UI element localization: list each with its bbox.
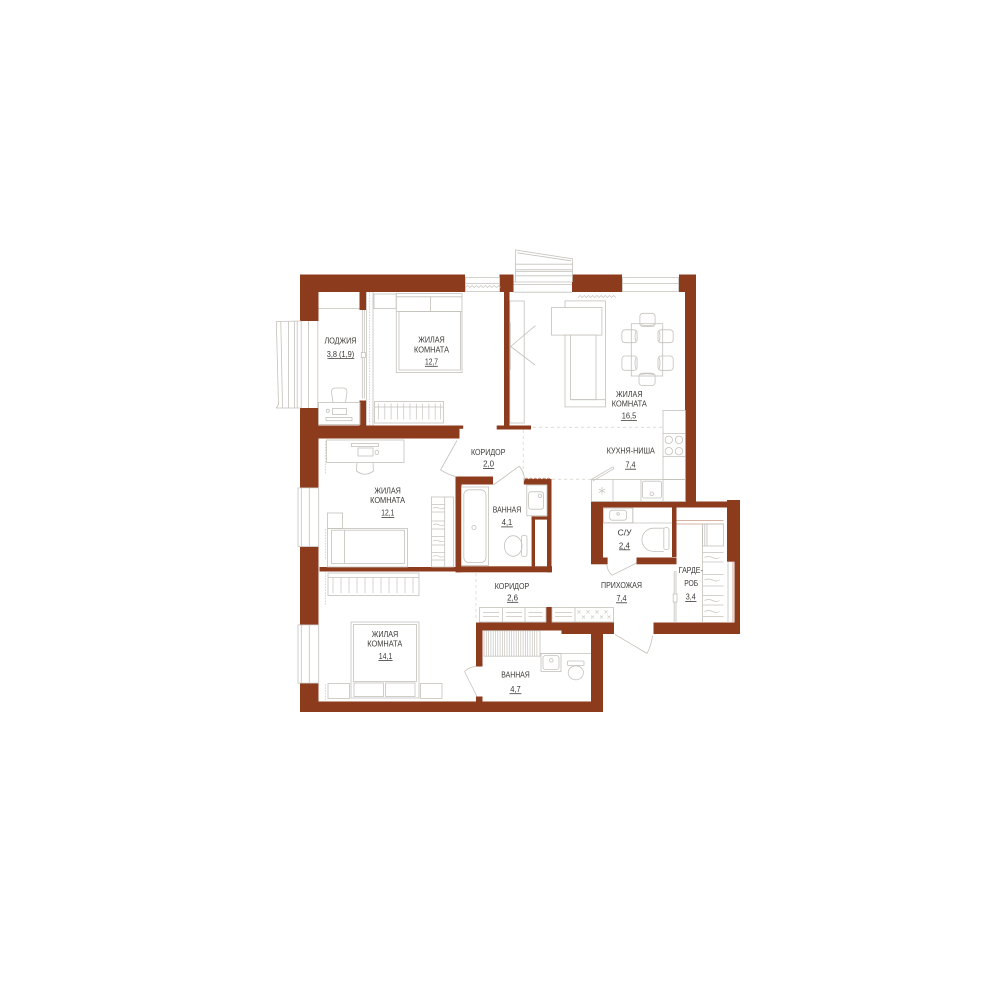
svg-text:ВАННАЯ: ВАННАЯ xyxy=(501,670,530,680)
svg-text:ЖИЛАЯ: ЖИЛАЯ xyxy=(616,389,643,399)
svg-text:ПРИХОЖАЯ: ПРИХОЖАЯ xyxy=(601,580,642,590)
svg-text:КУХНЯ-НИША: КУХНЯ-НИША xyxy=(607,446,655,456)
svg-text:12,7: 12,7 xyxy=(425,357,438,367)
svg-text:3,8 (1,9): 3,8 (1,9) xyxy=(327,349,355,359)
svg-text:2,6: 2,6 xyxy=(507,593,518,603)
svg-text:3,4: 3,4 xyxy=(686,592,696,602)
svg-text:КОМНАТА: КОМНАТА xyxy=(612,398,647,408)
svg-text:РОБ: РОБ xyxy=(684,578,698,588)
svg-text:КОРИДОР: КОРИДОР xyxy=(471,447,506,457)
svg-text:КОМНАТА: КОМНАТА xyxy=(370,495,405,505)
svg-text:ВАННАЯ: ВАННАЯ xyxy=(493,505,522,515)
svg-text:4,1: 4,1 xyxy=(502,517,513,527)
svg-text:12,1: 12,1 xyxy=(381,508,394,518)
svg-text:14,1: 14,1 xyxy=(379,651,393,661)
svg-text:ЛОДЖИЯ: ЛОДЖИЯ xyxy=(325,336,357,346)
svg-text:7,4: 7,4 xyxy=(626,459,636,469)
svg-text:16,5: 16,5 xyxy=(622,411,637,421)
svg-text:КОМНАТА: КОМНАТА xyxy=(414,345,449,355)
svg-text:2,4: 2,4 xyxy=(619,541,630,551)
svg-text:4,7: 4,7 xyxy=(510,684,521,694)
svg-text:КОМНАТА: КОМНАТА xyxy=(367,639,402,649)
svg-text:ГАРДЕ-: ГАРДЕ- xyxy=(679,565,703,575)
svg-text:КОРИДОР: КОРИДОР xyxy=(495,581,530,591)
svg-text:2,0: 2,0 xyxy=(483,459,494,469)
svg-text:7,4: 7,4 xyxy=(617,593,627,603)
svg-text:ЖИЛАЯ: ЖИЛАЯ xyxy=(374,485,401,495)
svg-text:ЖИЛАЯ: ЖИЛАЯ xyxy=(372,629,399,639)
svg-text:С/У: С/У xyxy=(618,528,633,538)
svg-text:ЖИЛАЯ: ЖИЛАЯ xyxy=(418,335,445,345)
